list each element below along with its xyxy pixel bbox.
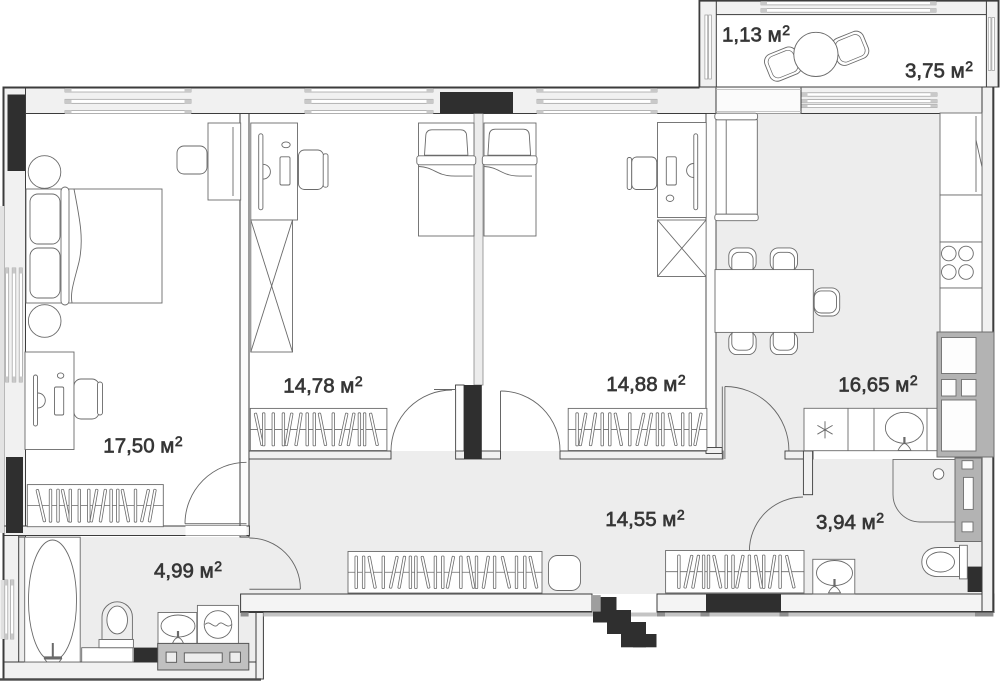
svg-text:16,65 м2: 16,65 м2 [838,372,918,397]
svg-text:14,88 м2: 14,88 м2 [606,372,686,397]
svg-text:17,50 м2: 17,50 м2 [103,433,183,458]
svg-text:14,55 м2: 14,55 м2 [605,507,685,532]
svg-text:1,13 м2: 1,13 м2 [722,22,790,47]
svg-text:14,78 м2: 14,78 м2 [283,373,363,398]
svg-text:3,75 м2: 3,75 м2 [905,58,973,83]
svg-text:4,99 м2: 4,99 м2 [154,558,222,583]
svg-text:3,94 м2: 3,94 м2 [816,510,884,535]
